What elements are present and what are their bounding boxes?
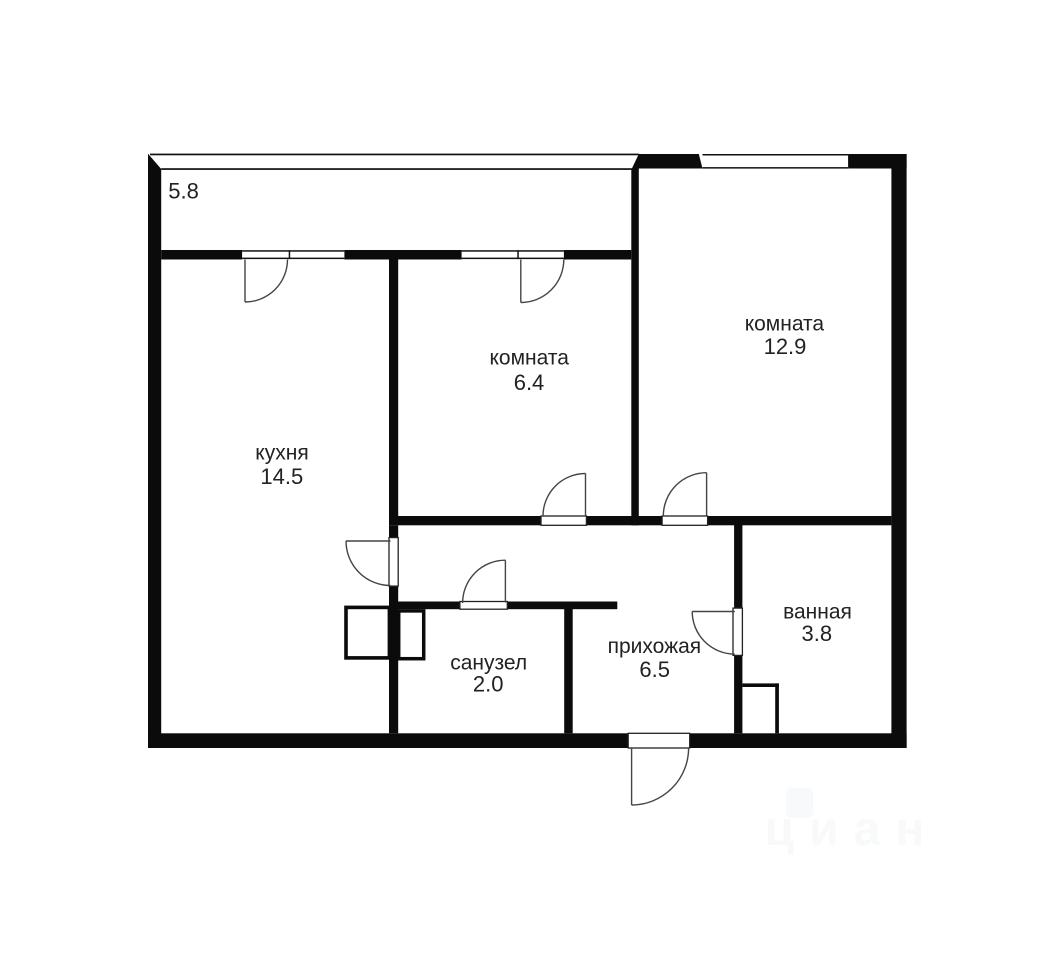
svg-text:6.4: 6.4 bbox=[514, 370, 545, 395]
svg-text:циан: циан bbox=[765, 803, 940, 856]
svg-text:12.9: 12.9 bbox=[764, 334, 807, 359]
svg-text:2.0: 2.0 bbox=[473, 671, 504, 696]
svg-text:комната: комната bbox=[489, 347, 569, 370]
svg-text:прихожая: прихожая bbox=[608, 635, 702, 658]
svg-text:6.5: 6.5 bbox=[639, 657, 670, 682]
svg-text:14.5: 14.5 bbox=[260, 464, 303, 489]
svg-text:5.8: 5.8 bbox=[168, 178, 199, 203]
svg-text:комната: комната bbox=[745, 313, 825, 336]
svg-text:3.8: 3.8 bbox=[802, 621, 833, 646]
svg-text:кухня: кухня bbox=[255, 442, 308, 465]
